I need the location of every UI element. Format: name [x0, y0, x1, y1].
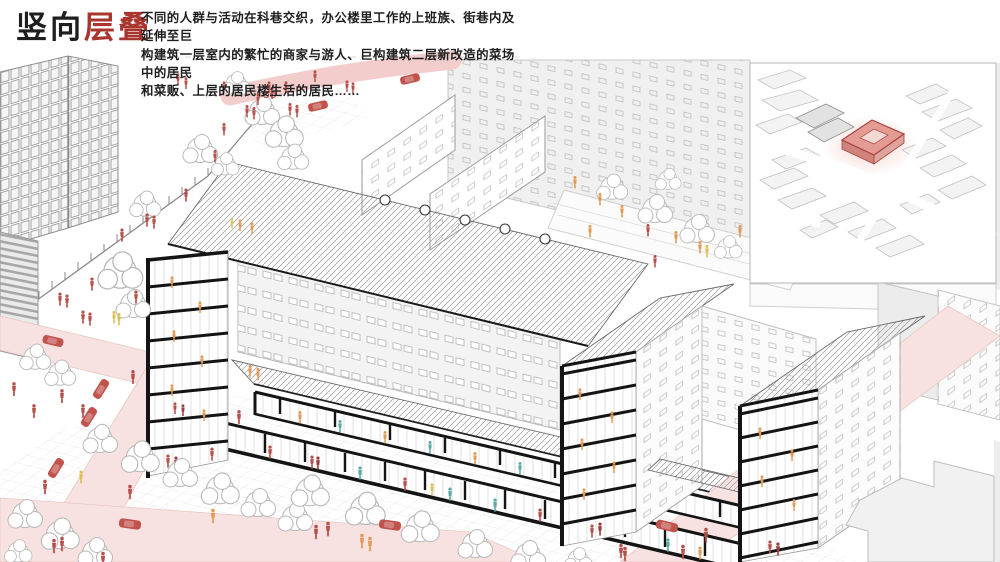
- axonometric-drawing: [0, 0, 1000, 562]
- section-cut-left-tower: [148, 252, 228, 478]
- site-map-inset: [750, 63, 996, 283]
- office-tower: [0, 56, 118, 248]
- poster-page: 竖向层叠 不同的人群与活动在科巷交织，办公楼里工作的上班族、街巷内及延伸至巨 构…: [0, 0, 1000, 562]
